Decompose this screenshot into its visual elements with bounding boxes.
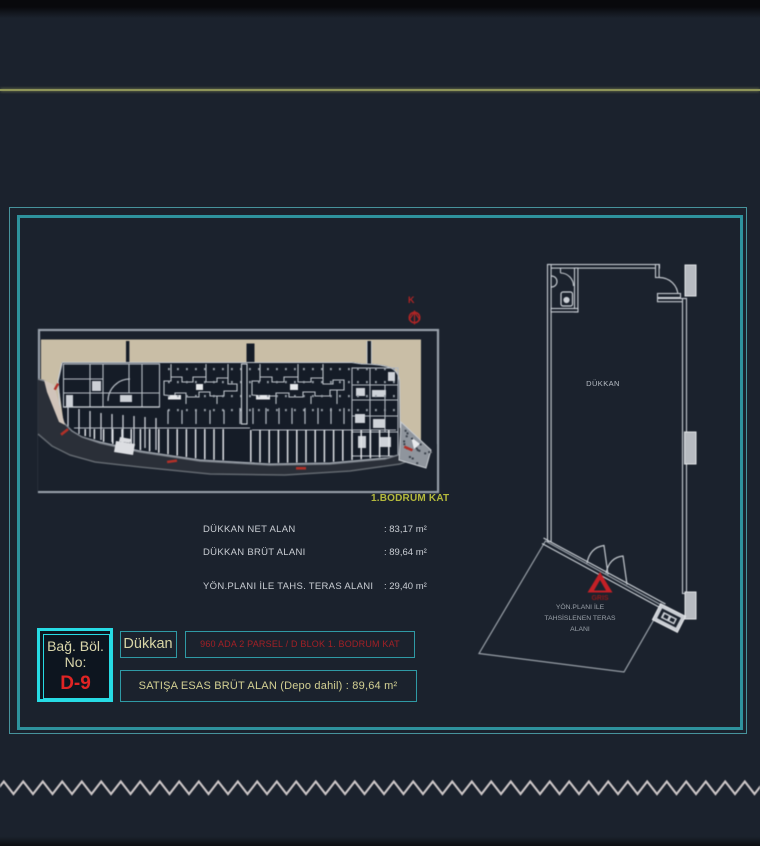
svg-text:GRIS: GRIS [591, 595, 608, 602]
svg-text:K: K [408, 295, 415, 305]
